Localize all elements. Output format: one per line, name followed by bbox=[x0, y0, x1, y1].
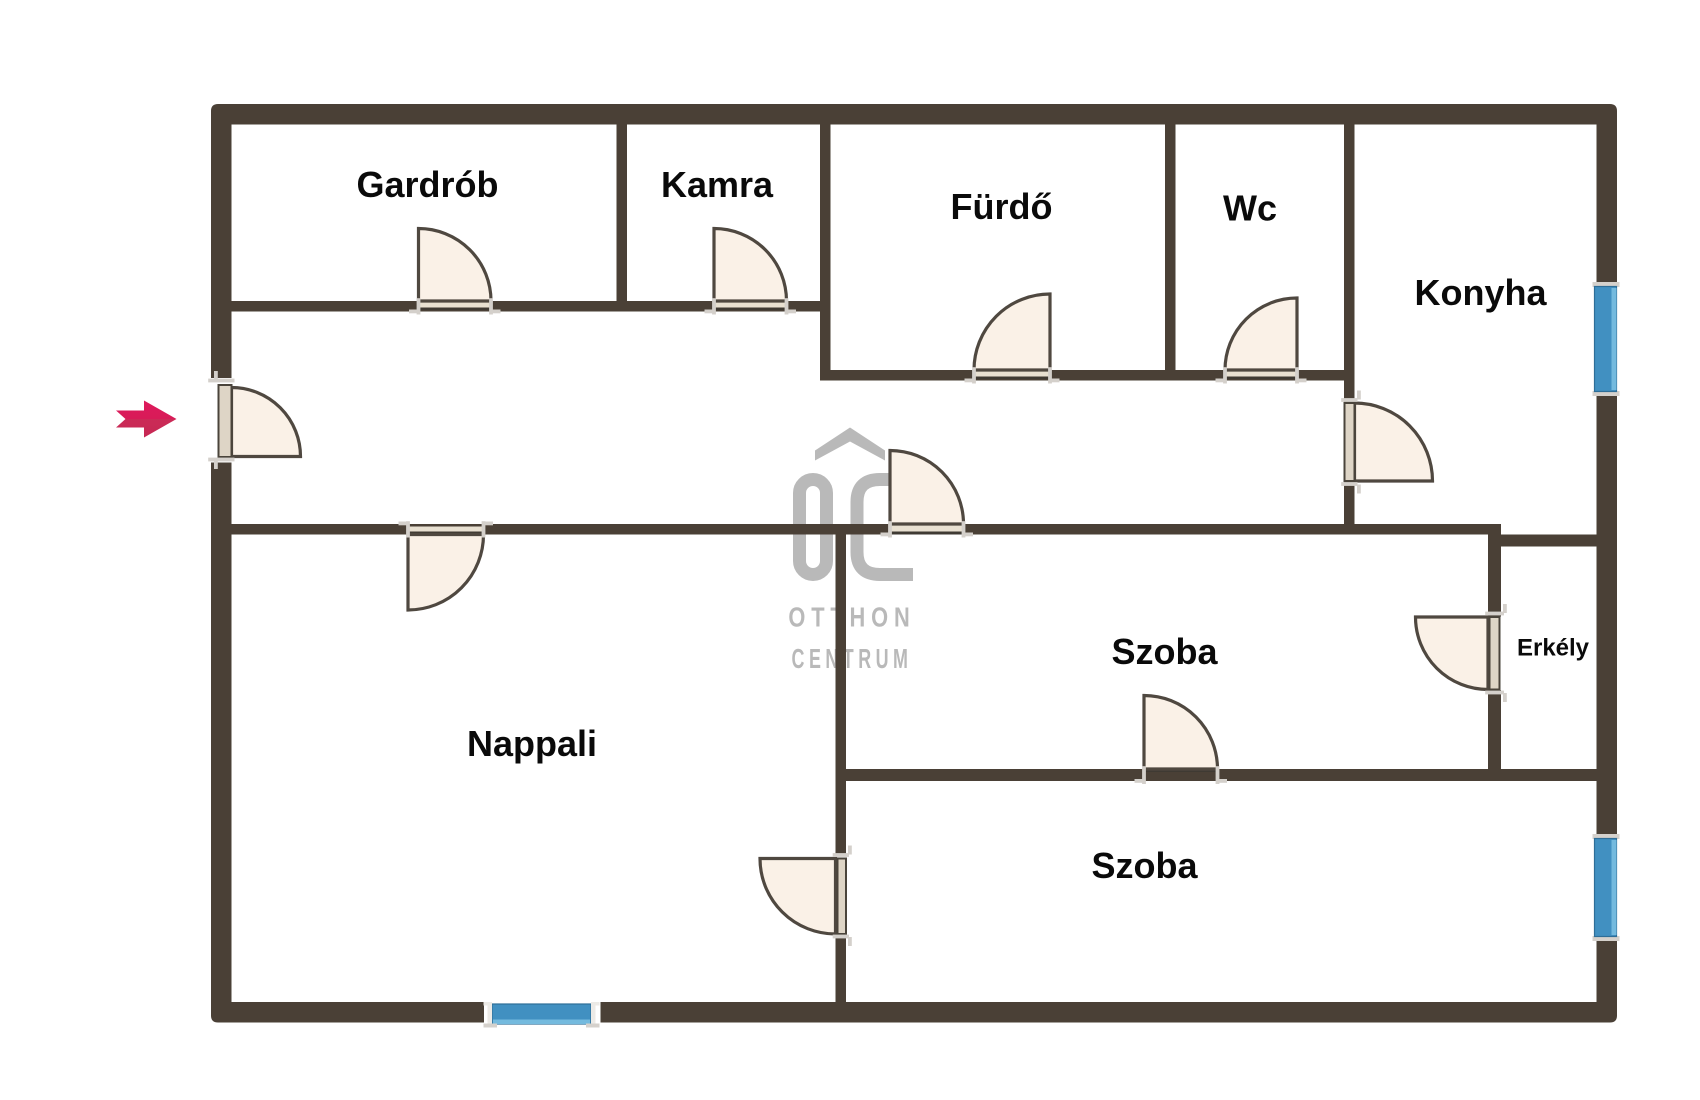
svg-text:Nappali: Nappali bbox=[467, 723, 597, 764]
svg-text:Szoba: Szoba bbox=[1091, 845, 1198, 886]
svg-text:CENTRUM: CENTRUM bbox=[792, 643, 913, 674]
svg-text:Wc: Wc bbox=[1223, 188, 1277, 229]
svg-text:Gardrób: Gardrób bbox=[356, 164, 498, 205]
svg-text:Kamra: Kamra bbox=[661, 164, 774, 205]
svg-text:Szoba: Szoba bbox=[1111, 631, 1218, 672]
svg-text:Konyha: Konyha bbox=[1414, 272, 1547, 313]
svg-text:Fürdő: Fürdő bbox=[951, 186, 1053, 227]
svg-text:OTTHON: OTTHON bbox=[788, 602, 915, 633]
svg-text:Erkély: Erkély bbox=[1517, 635, 1590, 662]
